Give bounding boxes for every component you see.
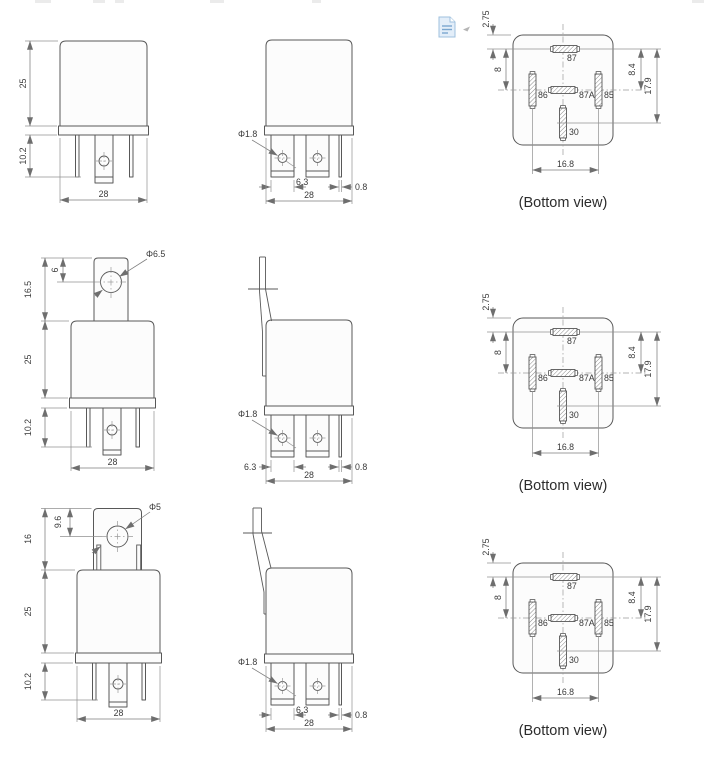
dim-gap-left: 8 xyxy=(493,350,503,355)
pin-label-30: 30 xyxy=(569,127,579,137)
dim-width: 28 xyxy=(108,457,118,467)
dim-gap-right: 8.4 xyxy=(627,63,637,75)
bottom-view-row3: 2.75 8 8.4 17.9 16.8 87 87A 86 85 30 (Bo… xyxy=(481,538,661,739)
dim-hole-offset: 9.6 xyxy=(53,516,63,528)
dim-pin-span-height: 17.9 xyxy=(643,605,653,622)
dim-hole-offset: 6 xyxy=(50,267,60,272)
dim-pin-span-width: 16.8 xyxy=(557,442,574,452)
dim-blade-width: 6.3 xyxy=(244,462,256,472)
dim-bracket-height: 16.5 xyxy=(23,281,33,298)
dim-pin-span-width: 16.8 xyxy=(557,687,574,697)
dim-width: 28 xyxy=(304,470,314,480)
dim-thin-blade: 0.8 xyxy=(355,462,367,472)
pin-label-86: 86 xyxy=(538,618,548,628)
dim-pin-offset-top: 2.75 xyxy=(481,293,491,310)
dim-pin-length: 10.2 xyxy=(23,419,33,436)
dim-body-height: 25 xyxy=(18,79,28,89)
dim-bracket-height: 16 xyxy=(23,534,33,544)
pin-label-85: 85 xyxy=(604,373,614,383)
side-view-row2: Φ1.8 6.3 0.8 28 xyxy=(238,257,367,484)
dim-pin-span-width: 16.8 xyxy=(557,159,574,169)
dim-gap-right: 8.4 xyxy=(627,591,637,603)
note-annotation-icon[interactable] xyxy=(439,17,455,37)
front-view-row3: Φ5 9.6 16 25 10.2 28 xyxy=(23,502,162,722)
dim-gap-left: 8 xyxy=(493,67,503,72)
dim-hole-diameter: Φ1.8 xyxy=(238,409,257,419)
cropped-text-artifacts xyxy=(35,0,704,3)
dim-blade-width: 6.3 xyxy=(296,177,308,187)
side-view-row1: Φ1.8 6.3 0.8 28 xyxy=(238,40,367,204)
front-view-row1: 25 10.2 28 xyxy=(18,41,149,203)
dim-thin-blade: 0.8 xyxy=(355,182,367,192)
pin-label-87a: 87A xyxy=(579,618,595,628)
dim-pin-span-height: 17.9 xyxy=(643,77,653,94)
dim-hole-diameter: Φ1.8 xyxy=(238,657,257,667)
dim-width: 28 xyxy=(304,190,314,200)
pin-label-87a: 87A xyxy=(579,373,595,383)
cursor-arrow-icon xyxy=(463,27,470,32)
dim-body-height: 25 xyxy=(23,355,33,365)
bottom-view-caption: (Bottom view) xyxy=(519,723,608,739)
relay-dimension-drawing-sheet: 25 10.2 28 Φ1.8 6.3 0.8 28 2.75 8 8.4 17… xyxy=(0,0,712,758)
dim-blade-width: 6.3 xyxy=(296,705,308,715)
bottom-view-caption: (Bottom view) xyxy=(519,195,608,211)
drawing-canvas: 25 10.2 28 Φ1.8 6.3 0.8 28 2.75 8 8.4 17… xyxy=(0,0,712,758)
dim-body-height: 25 xyxy=(23,607,33,617)
pin-label-30: 30 xyxy=(569,655,579,665)
pin-label-86: 86 xyxy=(538,90,548,100)
dim-width: 28 xyxy=(99,189,109,199)
pin-label-87: 87 xyxy=(567,336,577,346)
dim-width: 28 xyxy=(304,718,314,728)
dim-gap-right: 8.4 xyxy=(627,346,637,358)
bottom-view-row1: 2.75 8 8.4 17.9 16.8 87 87A 86 85 30 (Bo… xyxy=(481,10,661,211)
pin-label-87: 87 xyxy=(567,581,577,591)
dim-pin-length: 10.2 xyxy=(18,147,28,164)
dim-thin-blade: 0.8 xyxy=(355,710,367,720)
pin-label-87a: 87A xyxy=(579,90,595,100)
pin-label-30: 30 xyxy=(569,410,579,420)
dim-hole-diameter: Φ1.8 xyxy=(238,129,257,139)
dim-pin-offset-top: 2.75 xyxy=(481,538,491,555)
side-view-row3: Φ1.8 6.3 0.8 28 xyxy=(238,508,367,732)
dim-pin-offset-top: 2.75 xyxy=(481,10,491,27)
pin-label-85: 85 xyxy=(604,618,614,628)
pin-label-87: 87 xyxy=(567,53,577,63)
dim-pin-length: 10.2 xyxy=(23,673,33,690)
dim-gap-left: 8 xyxy=(493,595,503,600)
pin-label-85: 85 xyxy=(604,90,614,100)
front-view-row2: Φ6.5 6 16.5 25 10.2 28 xyxy=(23,249,165,471)
dim-pin-span-height: 17.9 xyxy=(643,360,653,377)
dim-hole-diameter: Φ6.5 xyxy=(146,249,165,259)
bottom-view-row2: 2.75 8 8.4 17.9 16.8 87 87A 86 85 30 (Bo… xyxy=(481,293,661,494)
bottom-view-caption: (Bottom view) xyxy=(519,478,608,494)
dim-width: 28 xyxy=(114,708,124,718)
pin-label-86: 86 xyxy=(538,373,548,383)
dim-hole-diameter: Φ5 xyxy=(149,502,161,512)
